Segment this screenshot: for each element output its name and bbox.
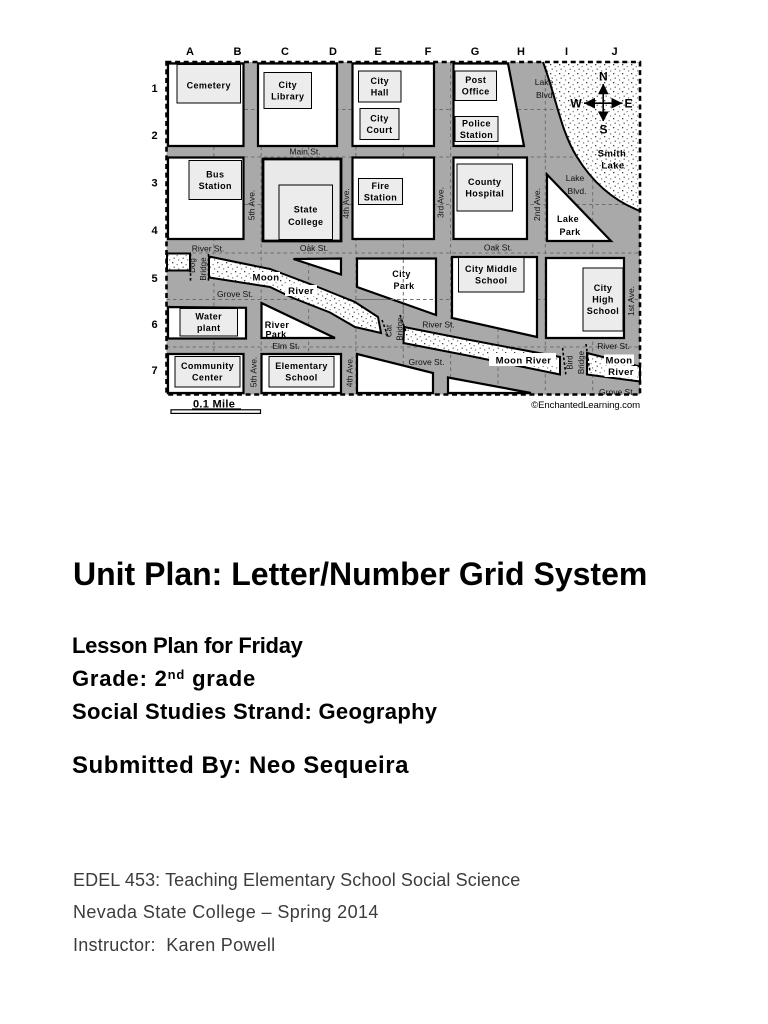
svg-text:County: County	[468, 177, 501, 187]
svg-text:Elementary: Elementary	[275, 361, 328, 371]
svg-text:Bridge: Bridge	[577, 350, 586, 374]
svg-text:Station: Station	[199, 181, 232, 191]
svg-text:G: G	[471, 46, 480, 58]
svg-text:B: B	[234, 46, 242, 58]
svg-text:1st Ave.: 1st Ave.	[626, 286, 636, 316]
svg-text:Court: Court	[367, 125, 393, 135]
svg-text:Cemetery: Cemetery	[187, 81, 231, 91]
svg-text:Community: Community	[181, 361, 234, 371]
svg-text:E: E	[624, 97, 632, 111]
svg-text:River: River	[608, 367, 634, 378]
svg-text:D: D	[329, 46, 337, 58]
svg-text:Grove St.: Grove St.	[217, 289, 253, 299]
svg-text:Station: Station	[364, 192, 397, 202]
svg-text:H: H	[517, 46, 525, 58]
svg-text:Lake: Lake	[601, 161, 624, 172]
svg-text:1: 1	[151, 83, 157, 95]
svg-text:Bus: Bus	[206, 169, 224, 179]
svg-text:4th Ave.: 4th Ave.	[345, 357, 355, 388]
svg-text:Grove St.: Grove St.	[409, 357, 445, 367]
svg-text:Fire: Fire	[371, 181, 389, 191]
svg-text:Moon: Moon	[253, 273, 280, 284]
svg-text:5th Ave.: 5th Ave.	[249, 357, 259, 388]
svg-text:Bridge: Bridge	[396, 317, 405, 341]
svg-text:Hospital: Hospital	[465, 188, 504, 198]
svg-text:City: City	[370, 113, 389, 123]
svg-text:6: 6	[151, 319, 157, 331]
svg-text:Water: Water	[195, 312, 222, 322]
svg-text:plant: plant	[197, 323, 221, 333]
svg-text:Park: Park	[559, 227, 581, 237]
svg-text:3rd Ave.: 3rd Ave.	[436, 187, 446, 218]
svg-text:Blvd.: Blvd.	[568, 186, 587, 196]
svg-text:C: C	[281, 46, 289, 58]
svg-text:River: River	[265, 320, 290, 330]
svg-text:A: A	[186, 46, 194, 58]
svg-text:Cat: Cat	[385, 324, 394, 337]
svg-text:Center: Center	[192, 373, 223, 383]
svg-text:5: 5	[151, 273, 157, 285]
svg-text:Bridge: Bridge	[199, 257, 208, 281]
svg-text:School: School	[475, 276, 507, 286]
svg-text:Office: Office	[462, 87, 490, 97]
svg-text:City: City	[278, 80, 297, 90]
svg-text:Lake: Lake	[557, 214, 579, 224]
svg-text:Post: Post	[465, 75, 486, 85]
svg-text:Lake: Lake	[566, 173, 585, 183]
svg-text:4: 4	[151, 225, 158, 237]
svg-text:4th Ave.: 4th Ave.	[341, 188, 351, 219]
svg-text:2nd Ave.: 2nd Ave.	[532, 188, 542, 221]
svg-text:School: School	[587, 306, 619, 316]
svg-text:Smith: Smith	[598, 149, 626, 160]
svg-text:High: High	[592, 295, 614, 305]
svg-text:Bird: Bird	[566, 355, 575, 369]
svg-text:Moon River: Moon River	[496, 356, 552, 367]
svg-text:Dog: Dog	[188, 258, 197, 273]
svg-text:Library: Library	[271, 91, 304, 101]
svg-text:Moon: Moon	[606, 356, 633, 367]
svg-text:©EnchantedLearning.com: ©EnchantedLearning.com	[531, 400, 640, 411]
svg-text:F: F	[425, 46, 432, 58]
svg-text:City: City	[370, 76, 389, 86]
svg-text:Blvd.: Blvd.	[536, 90, 555, 100]
svg-text:School: School	[285, 373, 317, 383]
svg-text:Elm St.: Elm St.	[272, 341, 299, 351]
svg-text:River St.: River St.	[422, 320, 455, 330]
svg-text:2: 2	[151, 130, 157, 142]
svg-text:Park: Park	[393, 281, 415, 291]
svg-text:College: College	[288, 217, 323, 227]
svg-text:I: I	[565, 46, 568, 58]
svg-text:5th Ave.: 5th Ave.	[247, 190, 257, 221]
svg-text:Oak St.: Oak St.	[300, 243, 328, 253]
svg-text:J: J	[611, 46, 617, 58]
svg-text:City: City	[594, 283, 613, 293]
svg-text:Station: Station	[460, 130, 493, 140]
svg-text:Police: Police	[462, 118, 491, 128]
svg-text:River: River	[288, 286, 314, 297]
svg-text:3: 3	[151, 178, 157, 190]
svg-text:N: N	[599, 70, 608, 84]
svg-text:River St.: River St.	[597, 341, 630, 351]
svg-text:Hall: Hall	[371, 87, 389, 97]
svg-text:S: S	[599, 123, 607, 137]
svg-text:Park: Park	[265, 330, 287, 340]
svg-text:Main St.: Main St.	[289, 147, 320, 157]
svg-text:State: State	[294, 205, 318, 215]
svg-text:Lake: Lake	[535, 77, 554, 87]
svg-text:W: W	[570, 97, 582, 111]
svg-text:City Middle: City Middle	[465, 264, 517, 274]
svg-text:City: City	[392, 269, 411, 279]
svg-text:7: 7	[151, 365, 157, 377]
svg-text:River St.: River St.	[192, 244, 225, 254]
svg-text:E: E	[374, 46, 381, 58]
svg-text:Oak St.: Oak St.	[484, 243, 512, 253]
